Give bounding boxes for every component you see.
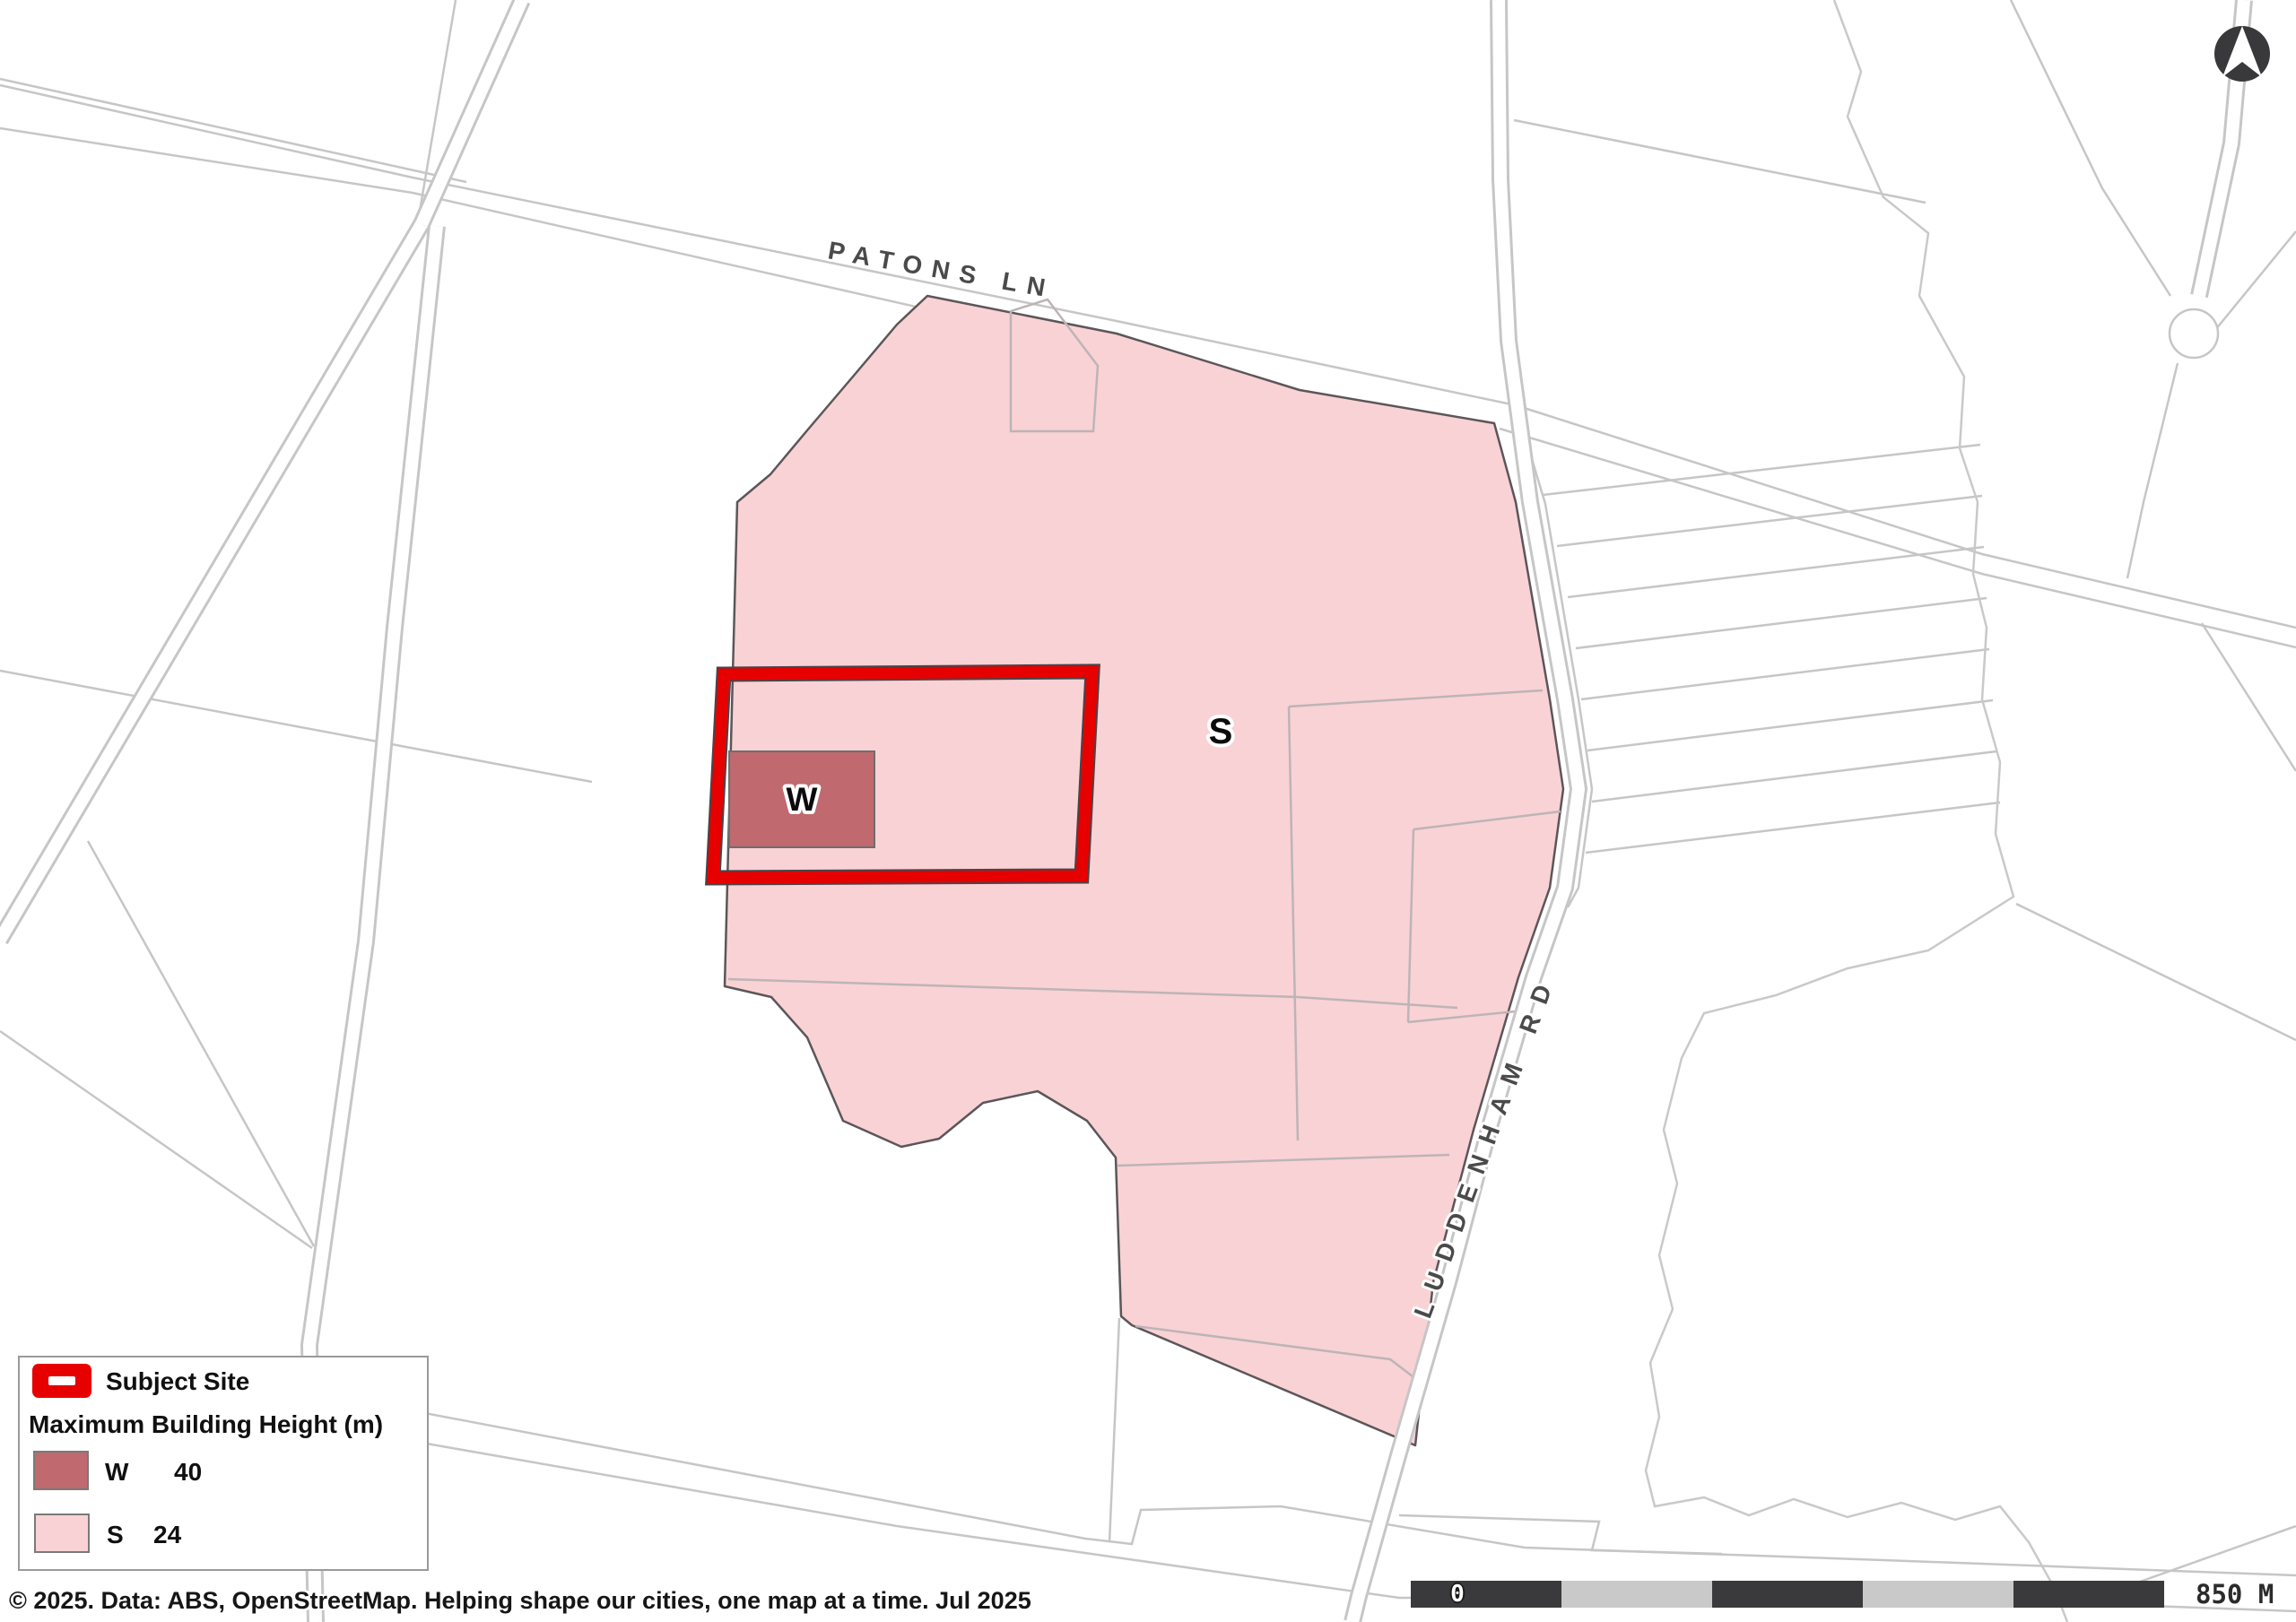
scale-bar-segment bbox=[1863, 1581, 2013, 1608]
legend-code-w: W bbox=[105, 1458, 128, 1487]
subject-site-legend-label: Subject Site bbox=[106, 1367, 249, 1396]
scale-bar-start-label: 0 bbox=[1433, 1581, 1482, 1608]
legend-section-title: Maximum Building Height (m) bbox=[29, 1410, 383, 1439]
legend-swatch-w bbox=[33, 1451, 89, 1490]
scale-bar-segment bbox=[1712, 1581, 1863, 1608]
scale-bar-segment bbox=[1561, 1581, 1712, 1608]
subject-site-legend-icon bbox=[32, 1364, 91, 1398]
creek-line bbox=[1646, 0, 2067, 1622]
scale-bar-segment bbox=[2013, 1581, 2164, 1608]
zone-s-label: S bbox=[1209, 712, 1233, 751]
copyright-text: © 2025. Data: ABS, OpenStreetMap. Helpin… bbox=[9, 1587, 1031, 1615]
legend-swatch-s bbox=[34, 1514, 90, 1553]
north-arrow-icon bbox=[2214, 26, 2270, 82]
legend-value-s: 24 bbox=[153, 1521, 181, 1549]
legend-box: Subject Site Maximum Building Height (m)… bbox=[18, 1356, 429, 1571]
legend-value-w: 40 bbox=[174, 1458, 202, 1487]
scale-bar bbox=[1411, 1581, 2164, 1608]
legend-code-s: S bbox=[107, 1521, 124, 1549]
zone-w-label: W bbox=[787, 781, 818, 818]
scale-bar-end-label: 850 M bbox=[2196, 1581, 2274, 1608]
